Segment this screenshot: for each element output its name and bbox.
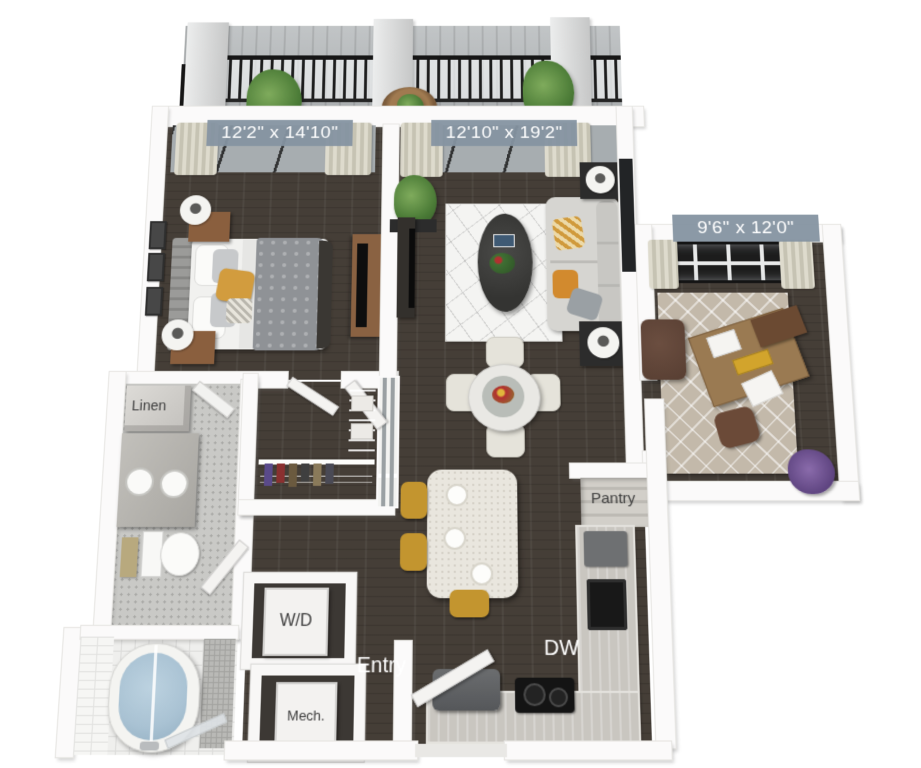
closet-south-wall	[238, 500, 394, 514]
dishwasher-label: DW	[544, 637, 579, 662]
den-armchair	[641, 319, 687, 379]
closet-clothes-6	[325, 464, 334, 484]
cooktop-burner-1	[523, 683, 546, 706]
washer-dryer-unit: W/D	[262, 588, 329, 656]
living-tv	[409, 229, 416, 308]
den-dimensions: 9'6" x 12'0"	[672, 215, 820, 242]
living-dimensions-text: 12'10" x 19'2"	[446, 123, 563, 143]
island-place-setting-3	[470, 562, 493, 585]
island-stool-2	[400, 533, 427, 571]
den-window	[663, 242, 797, 283]
bedroom-wall-art-2	[147, 253, 165, 281]
island-stool-1	[400, 482, 427, 519]
living-dimensions: 12'10" x 19'2"	[431, 120, 577, 146]
fruit-bowl	[492, 386, 514, 404]
side-table-top-lamp	[585, 166, 615, 193]
washer-dryer-label: W/D	[279, 612, 312, 631]
sofa-pillow-chevron	[551, 216, 585, 251]
bed-duvet	[253, 238, 326, 350]
mechanical-unit: Mech.	[274, 682, 337, 748]
closet-clothes-5	[313, 464, 322, 486]
closet-bin-1	[351, 395, 373, 411]
island-stool-3	[450, 590, 490, 618]
linen-label: Linen	[131, 397, 166, 413]
side-table-bottom-lamp	[587, 327, 620, 358]
entry-label: Entry	[357, 654, 407, 679]
bed-pillow-pattern	[226, 298, 253, 323]
closet-clothes-4	[301, 464, 310, 482]
island-place-setting-2	[443, 527, 466, 550]
coffee-table-flowers	[489, 253, 515, 274]
closet-clothes-3	[288, 464, 297, 487]
bedroom-tv	[356, 244, 368, 328]
closet-glass-door-wall	[378, 378, 398, 507]
island-place-setting-1	[446, 484, 469, 507]
towel-rack	[120, 537, 139, 577]
kitchen-sink-cabinet	[583, 531, 627, 566]
bedroom-dimensions: 12'2" x 14'10"	[206, 120, 353, 146]
den-curtain-right	[779, 240, 815, 289]
south-wall-right	[505, 742, 672, 760]
closet-clothes-2	[276, 464, 285, 483]
bedroom-wall-art-1	[149, 221, 167, 249]
south-wall-left	[225, 742, 418, 760]
cooktop-burner-2	[549, 688, 568, 708]
closet-bin-2	[351, 423, 374, 439]
sofa-seat-seam	[550, 260, 597, 263]
coffee-table-book	[493, 234, 515, 247]
mechanical-label: Mech.	[287, 707, 325, 724]
floorplan-3d: Linen Pantry W/D	[0, 14, 921, 768]
den-curtain-left	[648, 240, 679, 289]
bedroom-living-wall	[380, 124, 399, 387]
den-dimensions-text: 9'6" x 12'0"	[697, 218, 795, 238]
bed-foot-shadow	[316, 241, 332, 349]
bedroom-wall-art-3	[145, 287, 163, 316]
bathtub-faucet	[140, 742, 160, 751]
entry-threshold	[415, 744, 507, 757]
floorplan-screenshot: Linen Pantry W/D	[0, 0, 921, 768]
wall-oven	[587, 579, 628, 630]
bedroom-dimensions-text: 12'2" x 14'10"	[221, 123, 338, 143]
closet-clothes-1	[264, 464, 273, 486]
pantry-label: Pantry	[591, 490, 636, 507]
